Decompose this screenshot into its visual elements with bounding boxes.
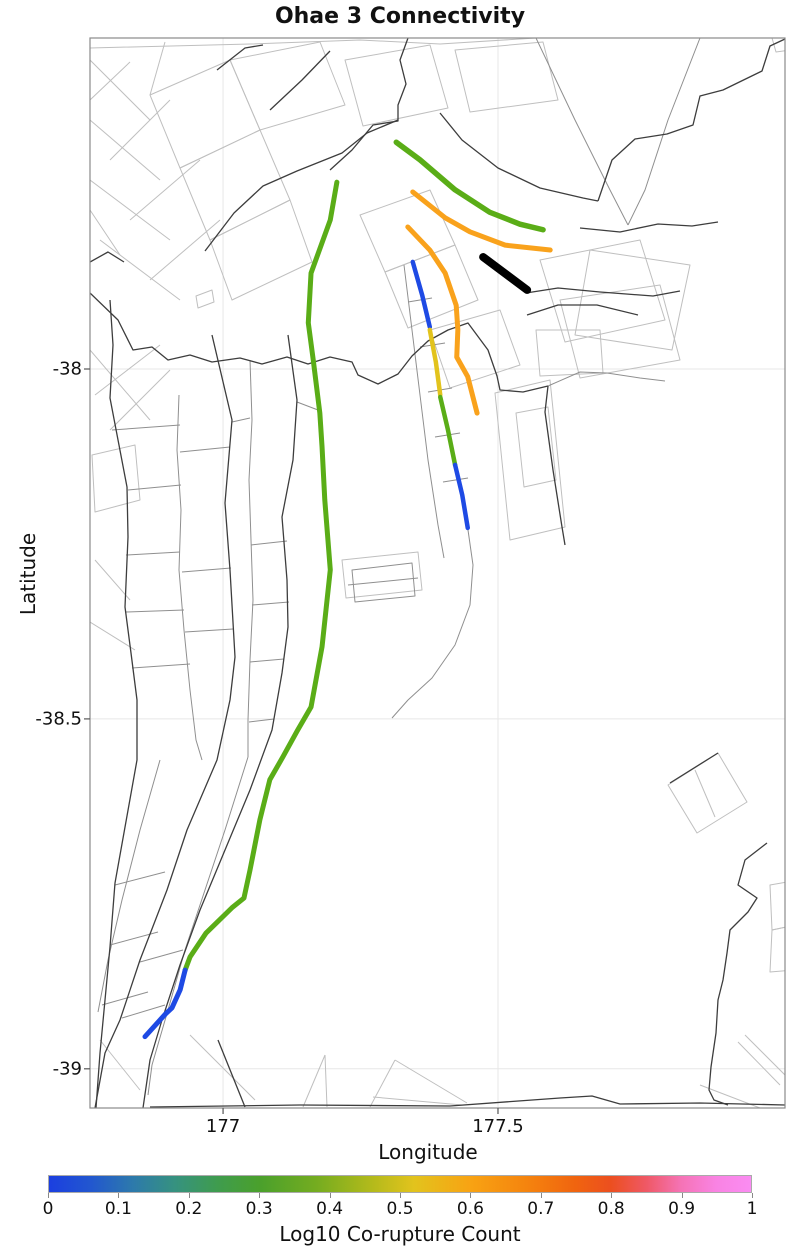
colorbar-tick-mark bbox=[541, 1193, 542, 1198]
colorbar-tick-mark bbox=[470, 1193, 471, 1198]
colorbar-tick-mark bbox=[752, 1193, 753, 1198]
background-fault-trace bbox=[112, 425, 180, 430]
background-fault-trace bbox=[180, 130, 290, 240]
background-fault-trace bbox=[148, 757, 248, 1095]
fault-trace-green-mid-segment bbox=[440, 397, 455, 465]
background-fault-trace bbox=[95, 560, 130, 600]
background-fault-trace bbox=[440, 113, 598, 201]
background-fault-trace bbox=[628, 38, 700, 225]
background-fault-trace bbox=[385, 245, 478, 328]
background-fault-trace bbox=[190, 1035, 255, 1100]
background-fault-trace bbox=[95, 345, 160, 395]
fault-trace-top-green-arc bbox=[396, 142, 543, 229]
background-fault-trace bbox=[90, 60, 150, 120]
colorbar-label: Log10 Co-rupture Count bbox=[0, 1222, 800, 1246]
background-fault-trace bbox=[373, 1097, 462, 1105]
background-fault-trace bbox=[348, 578, 418, 585]
background-fault-trace bbox=[251, 541, 287, 545]
colorbar-tick-label: 0.3 bbox=[246, 1199, 273, 1219]
background-fault-trace bbox=[580, 222, 718, 232]
fault-trace-long-green-trace bbox=[185, 182, 337, 970]
colorbar-tick-mark bbox=[118, 1193, 119, 1198]
background-fault-trace bbox=[248, 360, 253, 757]
background-fault-trace bbox=[132, 664, 190, 668]
background-fault-trace bbox=[772, 38, 790, 52]
background-fault-trace bbox=[360, 190, 455, 272]
colorbar-tick-label: 0.7 bbox=[527, 1199, 554, 1219]
y-tick-label: -38 bbox=[53, 359, 82, 380]
background-fault-trace bbox=[143, 335, 297, 1108]
colorbar-tick-mark bbox=[611, 1193, 612, 1198]
background-fault-trace bbox=[670, 753, 718, 783]
x-tick-label: 177 bbox=[206, 1116, 240, 1137]
fault-trace-top-orange-arc bbox=[413, 192, 550, 250]
background-fault-trace bbox=[395, 1060, 467, 1103]
background-fault-trace bbox=[150, 220, 220, 280]
y-tick-label: -38.5 bbox=[35, 708, 82, 729]
colorbar-tick-mark bbox=[259, 1193, 260, 1198]
colorbar-tick-label: 0 bbox=[43, 1199, 54, 1219]
background-fault-trace bbox=[303, 1055, 325, 1107]
colorbar-tick-mark bbox=[48, 1193, 49, 1198]
colorbar-tick-label: 0.8 bbox=[598, 1199, 625, 1219]
background-fault-trace bbox=[297, 402, 318, 410]
colorbar-tick-mark bbox=[400, 1193, 401, 1198]
colorbar-tick-mark bbox=[189, 1193, 190, 1198]
fault-trace-black-source-fault bbox=[483, 257, 527, 290]
background-fault-trace bbox=[180, 447, 230, 452]
figure-canvas: Ohae 3 Connectivity Latitude Longitude 1… bbox=[0, 0, 800, 1255]
background-fault-trace bbox=[548, 372, 665, 386]
background-fault-trace bbox=[218, 1040, 245, 1107]
background-fault-trace bbox=[370, 1060, 395, 1107]
fault-trace-gold-mid-segment bbox=[430, 330, 440, 395]
background-fault-trace bbox=[110, 370, 170, 430]
background-fault-trace bbox=[185, 629, 233, 632]
background-fault-trace bbox=[140, 950, 183, 962]
background-fault-trace bbox=[495, 380, 565, 540]
background-fault-trace bbox=[110, 932, 158, 945]
background-fault-trace bbox=[128, 485, 181, 490]
background-fault-trace bbox=[100, 240, 180, 300]
background-fault-trace bbox=[150, 60, 260, 168]
background-fault-trace bbox=[668, 753, 747, 833]
background-fault-trace bbox=[408, 298, 432, 302]
background-fault-trace bbox=[443, 478, 468, 482]
background-fault-trace bbox=[526, 288, 680, 296]
background-fault-trace bbox=[252, 602, 289, 605]
background-fault-trace bbox=[90, 180, 170, 240]
colorbar-tick-label: 0.2 bbox=[175, 1199, 202, 1219]
background-fault-trace bbox=[150, 1096, 785, 1107]
background-fault-trace bbox=[695, 770, 715, 817]
colorbar-gradient bbox=[48, 1175, 752, 1193]
background-fault-trace bbox=[770, 925, 796, 972]
colorbar-tick-label: 0.9 bbox=[668, 1199, 695, 1219]
background-fault-trace bbox=[210, 200, 312, 300]
background-fault-trace bbox=[249, 719, 274, 722]
background-fault-trace bbox=[250, 659, 284, 662]
colorbar-tick-mark bbox=[330, 1193, 331, 1198]
background-fault-trace bbox=[100, 1040, 140, 1090]
background-fault-trace bbox=[90, 350, 150, 420]
colorbar-tick-mark bbox=[682, 1193, 683, 1198]
background-fault-trace bbox=[270, 51, 330, 110]
y-axis-label: Latitude bbox=[16, 514, 40, 634]
colorbar-tick-label: 1 bbox=[747, 1199, 758, 1219]
background-fault-trace bbox=[325, 1055, 327, 1107]
background-fault-trace bbox=[345, 45, 448, 126]
background-fault-trace bbox=[110, 100, 170, 160]
background-fault-trace bbox=[330, 38, 408, 170]
fault-trace-blue-upper-segment bbox=[413, 262, 430, 327]
background-fault-trace bbox=[182, 568, 231, 572]
background-fault-trace bbox=[126, 552, 180, 555]
background-fault-trace bbox=[575, 250, 690, 350]
background-fault-trace bbox=[126, 610, 184, 612]
background-fault-trace bbox=[770, 880, 798, 930]
background-fault-trace bbox=[230, 42, 345, 130]
background-fault-trace bbox=[90, 120, 160, 180]
background-fault-trace bbox=[540, 240, 665, 342]
background-fault-trace bbox=[560, 285, 680, 378]
background-fault-trace bbox=[430, 310, 520, 388]
background-fault-trace bbox=[122, 1005, 165, 1018]
background-fault-trace bbox=[95, 335, 235, 1108]
background-fault-trace bbox=[90, 210, 120, 255]
colorbar-tick-label: 0.6 bbox=[457, 1199, 484, 1219]
background-fault-trace bbox=[150, 42, 165, 95]
colorbar-tick-label: 0.1 bbox=[105, 1199, 132, 1219]
background-fault-trace bbox=[90, 293, 548, 392]
background-fault-trace bbox=[598, 39, 785, 201]
map-plot bbox=[0, 0, 800, 1255]
x-tick-label: 177.5 bbox=[472, 1116, 524, 1137]
background-fault-trace bbox=[527, 305, 638, 315]
colorbar-tick-label: 0.4 bbox=[316, 1199, 343, 1219]
background-fault-trace bbox=[232, 418, 250, 422]
background-fault-trace bbox=[115, 872, 165, 885]
background-fault-trace bbox=[92, 445, 140, 512]
background-fault-trace bbox=[536, 38, 628, 225]
y-tick-label: -39 bbox=[53, 1058, 82, 1079]
background-fault-trace bbox=[196, 290, 214, 308]
background-fault-trace bbox=[392, 530, 473, 718]
fault-trace-blue-mid-segment bbox=[455, 465, 468, 528]
fault-trace-blue-tail-segment bbox=[145, 970, 185, 1036]
colorbar-tick-label: 0.5 bbox=[386, 1199, 413, 1219]
background-fault-trace bbox=[709, 843, 767, 1105]
x-axis-label: Longitude bbox=[0, 1140, 800, 1164]
